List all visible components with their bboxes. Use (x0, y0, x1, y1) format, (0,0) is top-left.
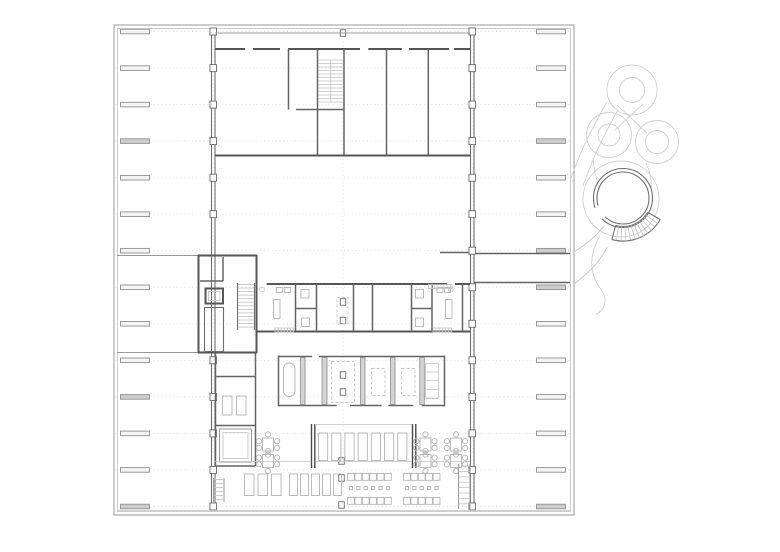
cafe-table (404, 474, 411, 481)
column (210, 138, 217, 145)
column (469, 357, 476, 364)
tower-spiral-stair-tread (612, 226, 616, 240)
left-wing-partition-stub (121, 504, 150, 509)
cafe-chair (364, 487, 367, 490)
left-wing-partition-stub (121, 139, 150, 144)
bench (301, 474, 309, 496)
chair (423, 432, 428, 437)
dorm-divider-wall (322, 358, 327, 405)
bench (245, 474, 255, 496)
cafe-chair (379, 487, 382, 490)
left-wing-partition-stub (121, 395, 150, 400)
floor-plan-drawing (0, 0, 780, 552)
right-wing-partition-stub (537, 285, 566, 290)
cafe-table (433, 498, 440, 505)
bed-outline (402, 369, 416, 396)
chair (444, 445, 449, 450)
dorm-divider-wall (420, 358, 425, 405)
right-wing-partition-stub (537, 102, 566, 107)
cafe-chair (435, 487, 438, 490)
counter (274, 300, 281, 319)
cafe-chair (405, 487, 408, 490)
left-wing-partition-stub (121, 175, 150, 180)
right-wing-partition-stub (537, 358, 566, 363)
column (469, 101, 476, 108)
chair (265, 469, 270, 474)
slide-tube (615, 104, 643, 130)
column (340, 317, 346, 324)
table-with-chairs (263, 438, 274, 451)
floor-plan-svg (0, 0, 780, 552)
cafe-table (418, 474, 425, 481)
shower-stall (237, 396, 247, 415)
chair (256, 455, 261, 460)
slide-tube (617, 105, 647, 133)
right-wing-partition-stub (537, 66, 566, 71)
cafe-table (362, 498, 369, 505)
slide-loop-inner (598, 124, 620, 146)
door-swing (260, 287, 265, 292)
shower-stall (223, 396, 233, 415)
right-wing-partition-stub (537, 322, 566, 327)
stair-block-room (205, 308, 224, 352)
column (339, 458, 345, 465)
chair (463, 439, 468, 444)
chair (463, 455, 468, 460)
slide-loop-outer (607, 65, 657, 115)
column (210, 174, 217, 181)
right-wing-partition-stub (537, 395, 566, 400)
bench (312, 474, 320, 496)
cafe-table (370, 498, 377, 505)
elevator-car (209, 292, 221, 301)
slide-run-out (592, 236, 605, 314)
dorm-divider-wall (361, 358, 366, 405)
chair (432, 439, 437, 444)
chair (256, 462, 261, 467)
hall-table (358, 433, 367, 461)
chair (453, 469, 458, 474)
left-wing-partition-stub (121, 358, 150, 363)
cafe-table (426, 498, 433, 505)
chair (432, 445, 437, 450)
tower-outer-wall (594, 169, 653, 228)
wc-fixture (302, 318, 310, 327)
tower-entry-opening (587, 201, 613, 224)
left-wing-partition-stub (121, 212, 150, 217)
chair (432, 462, 437, 467)
slide-loop-inner (646, 131, 669, 154)
sink (285, 288, 291, 293)
counter (446, 300, 453, 319)
cafe-table (348, 474, 355, 481)
column (469, 174, 476, 181)
tower-spiral-stair-tread (616, 226, 618, 240)
walkway-edge (574, 247, 607, 284)
column (340, 299, 346, 306)
hall-table (332, 433, 341, 461)
cafe-table (418, 498, 425, 505)
cafe-table (377, 498, 384, 505)
tower-spiral-stair-tread (631, 225, 635, 239)
hall-table (371, 433, 380, 461)
table-with-chairs (451, 438, 462, 451)
column (210, 503, 217, 510)
chair (444, 462, 449, 467)
column (469, 65, 476, 72)
slide-loop-outer (587, 113, 632, 158)
tower-spiral-stair-tread (628, 226, 631, 240)
hall-table (345, 433, 354, 461)
column (469, 247, 476, 254)
right-wing-partition-stub (537, 504, 566, 509)
hall-table (385, 433, 394, 461)
chair (275, 439, 280, 444)
cafe-table (362, 474, 369, 481)
cafe-table (355, 474, 362, 481)
right-wing-partition-stub (537, 175, 566, 180)
cafe-table (433, 474, 440, 481)
cafe-table (411, 498, 418, 505)
wc-fixture (301, 290, 309, 299)
wc-fixture (416, 290, 424, 299)
column (469, 320, 476, 327)
wc-fixture (416, 318, 424, 327)
chair (275, 462, 280, 467)
cafe-table (348, 498, 355, 505)
chair (453, 432, 458, 437)
column (340, 389, 346, 396)
left-wing-partition-stub (121, 322, 150, 327)
right-wing-partition-stub (537, 212, 566, 217)
right-wing-partition-stub (537, 29, 566, 34)
column (210, 101, 217, 108)
slide-loop-inner (620, 78, 645, 103)
tower-spiral-stair-tread (625, 226, 626, 240)
table-with-chairs (420, 438, 431, 451)
chair (432, 455, 437, 460)
column (469, 393, 476, 400)
cafe-table (404, 498, 411, 505)
column (339, 502, 345, 509)
dorm-divider-wall (391, 358, 396, 405)
left-wing-partition-stub (121, 102, 150, 107)
tower-spiral-stair-tread (642, 219, 652, 230)
bathtub (284, 363, 296, 397)
tower-spiral-stair-tread (621, 226, 622, 240)
hall-table (398, 433, 407, 461)
column (340, 372, 346, 379)
storage-shelving (223, 433, 248, 459)
cafe-table (377, 474, 384, 481)
bed-outline (372, 369, 386, 396)
left-wing-partition-stub (121, 468, 150, 473)
table-with-chairs (420, 455, 431, 468)
column (210, 466, 217, 473)
left-wing-partition-stub (121, 66, 150, 71)
cafe-table (385, 474, 392, 481)
column (469, 138, 476, 145)
cafe-chair (386, 487, 389, 490)
chair (444, 439, 449, 444)
bench (272, 474, 282, 496)
column (210, 211, 217, 218)
cafe-table (385, 498, 392, 505)
right-wing-partition-stub (537, 139, 566, 144)
cafe-chair (428, 487, 431, 490)
right-wing-partition-stub (537, 248, 566, 253)
left-wing-partition-stub (121, 29, 150, 34)
cafe-chair (372, 487, 375, 490)
cafe-table (355, 498, 362, 505)
cafe-chair (420, 487, 423, 490)
chair (256, 439, 261, 444)
chair (444, 455, 449, 460)
cafe-table (370, 474, 377, 481)
cafe-chair (357, 487, 360, 490)
column (469, 211, 476, 218)
slide-loop-outer (636, 121, 679, 164)
left-wing-partition-stub (121, 248, 150, 253)
bench (290, 474, 298, 496)
left-wing-partition-stub (121, 285, 150, 290)
table-with-chairs (451, 455, 462, 468)
table-with-chairs (263, 455, 274, 468)
cafe-table (426, 474, 433, 481)
room-inner-outline (332, 362, 355, 403)
column (210, 65, 217, 72)
door-swing (449, 287, 454, 292)
chair (463, 445, 468, 450)
right-wing-partition-stub (537, 431, 566, 436)
cafe-chair (349, 487, 352, 490)
tower-spiral-stair-tread (646, 215, 658, 224)
hall-table (319, 433, 328, 461)
dorm-divider-wall (301, 358, 306, 405)
column (469, 28, 476, 35)
column (469, 430, 476, 437)
cafe-chair (413, 487, 416, 490)
right-wing-partition-stub (537, 468, 566, 473)
chair (256, 445, 261, 450)
storage-room (220, 429, 252, 462)
left-wing-partition-stub (121, 431, 150, 436)
chair (423, 469, 428, 474)
cafe-table (411, 474, 418, 481)
bench (323, 474, 331, 496)
chair (275, 445, 280, 450)
chair (275, 455, 280, 460)
sink (277, 288, 283, 293)
chair (265, 432, 270, 437)
column (210, 28, 217, 35)
bench (258, 474, 268, 496)
